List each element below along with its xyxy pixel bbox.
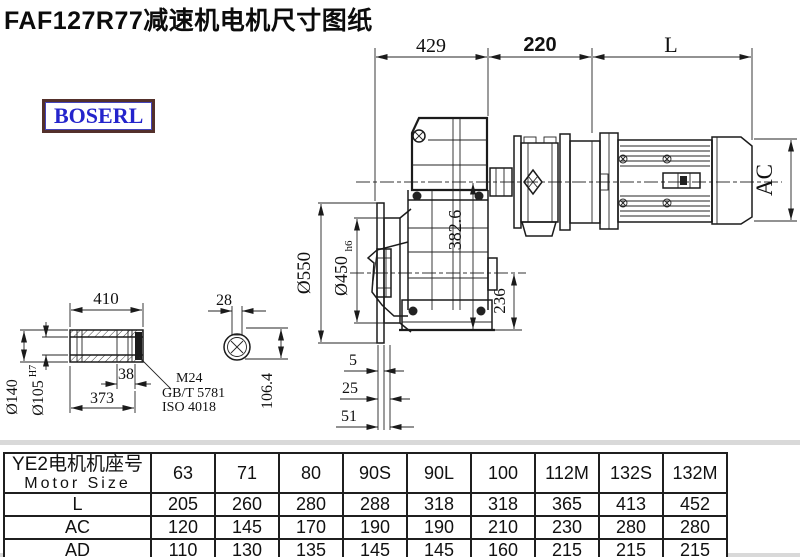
bolt-note-m24: M24 <box>176 371 202 386</box>
col-header: 112M <box>535 453 599 493</box>
cell: 230 <box>535 516 599 539</box>
dim-382-6-label: 382.6 <box>445 210 465 251</box>
dim-373-label: 373 <box>90 390 114 407</box>
adapter-stage <box>490 134 600 236</box>
cell: 280 <box>279 493 343 516</box>
col-header: 80 <box>279 453 343 493</box>
cell: 260 <box>215 493 279 516</box>
dim-450-label: Ø450 <box>331 256 351 296</box>
fan-cowl <box>712 137 752 224</box>
bolt-note-gbt: GB/T 5781 <box>162 386 225 401</box>
dim-25-label: 25 <box>342 380 358 397</box>
cell: 120 <box>151 516 215 539</box>
col-header: 90S <box>343 453 407 493</box>
dim-382-6: 382.6 <box>445 183 473 329</box>
dim-429-label: 429 <box>416 35 446 57</box>
cell: 130 <box>215 539 279 557</box>
dim-140-label: Ø140 <box>4 379 21 415</box>
cell: 288 <box>343 493 407 516</box>
col-header: 132S <box>599 453 663 493</box>
cell: 170 <box>279 516 343 539</box>
drawing-sheet: FAF127R77减速机电机尺寸图纸 BOSERL 429 <box>0 0 800 557</box>
dim-410-label: 410 <box>93 289 119 308</box>
top-dimensions: 429 220 L <box>375 32 752 201</box>
cell: 318 <box>471 493 535 516</box>
cell: 190 <box>343 516 407 539</box>
table-row: AD 110 130 135 145 145 160 215 215 215 <box>4 539 727 557</box>
dim-236-label: 236 <box>490 288 509 314</box>
dim-550-label: Ø550 <box>294 252 315 294</box>
row-label: AD <box>4 539 151 557</box>
col-header: 100 <box>471 453 535 493</box>
cell: 280 <box>663 516 727 539</box>
cell: 145 <box>343 539 407 557</box>
cell: 365 <box>535 493 599 516</box>
cell: 215 <box>663 539 727 557</box>
cell: 110 <box>151 539 215 557</box>
dim-51-label: 51 <box>341 408 357 425</box>
col-header: 132M <box>663 453 727 493</box>
cell: 210 <box>471 516 535 539</box>
row-label: L <box>4 493 151 516</box>
cell: 160 <box>471 539 535 557</box>
table-header-en: Motor Size <box>5 475 150 492</box>
dim-236: 236 <box>490 274 522 330</box>
cell: 205 <box>151 493 215 516</box>
end-bolt <box>135 332 142 360</box>
dims-5-25-51: 5 25 51 <box>336 345 414 430</box>
dim-450-suffix: h6 <box>343 240 355 252</box>
cell: 318 <box>407 493 471 516</box>
motor-size-table: YE2电机机座号 Motor Size 63 71 80 90S 90L 100… <box>3 452 728 557</box>
dim-105-sup: H7 <box>28 365 39 377</box>
dim-220-label: 220 <box>523 34 556 56</box>
cell: 215 <box>599 539 663 557</box>
table-header-row: YE2电机机座号 Motor Size 63 71 80 90S 90L 100… <box>4 453 727 493</box>
dim-L-label: L <box>664 32 677 57</box>
dim-AC-label: AC <box>752 164 777 196</box>
gray-band-top <box>0 440 800 445</box>
cell: 145 <box>215 516 279 539</box>
row-label: AC <box>4 516 151 539</box>
dim-AC: AC <box>752 139 797 221</box>
dim-106-4-label: 106.4 <box>259 373 276 409</box>
table-header-cn: YE2电机机座号 <box>5 455 150 475</box>
dim-105-label: Ø105 <box>30 380 47 416</box>
dim-5-label: 5 <box>349 352 357 369</box>
dim-28-label: 28 <box>216 292 232 309</box>
cell: 413 <box>599 493 663 516</box>
col-header: 71 <box>215 453 279 493</box>
cell: 190 <box>407 516 471 539</box>
table-row: L 205 260 280 288 318 318 365 413 452 <box>4 493 727 516</box>
cell: 452 <box>663 493 727 516</box>
hollow-shaft-view: 410 Ø140 Ø105 H7 38 373 <box>4 289 225 416</box>
bolt-note-iso: ISO 4018 <box>162 400 216 415</box>
cell: 145 <box>407 539 471 557</box>
col-header: 63 <box>151 453 215 493</box>
table-header-cell: YE2电机机座号 Motor Size <box>4 453 151 493</box>
motor <box>600 133 752 229</box>
cell: 135 <box>279 539 343 557</box>
col-header: 90L <box>407 453 471 493</box>
cell: 215 <box>535 539 599 557</box>
dim-38-label: 38 <box>118 366 134 383</box>
table-row: AC 120 145 170 190 190 210 230 280 280 <box>4 516 727 539</box>
cell: 280 <box>599 516 663 539</box>
